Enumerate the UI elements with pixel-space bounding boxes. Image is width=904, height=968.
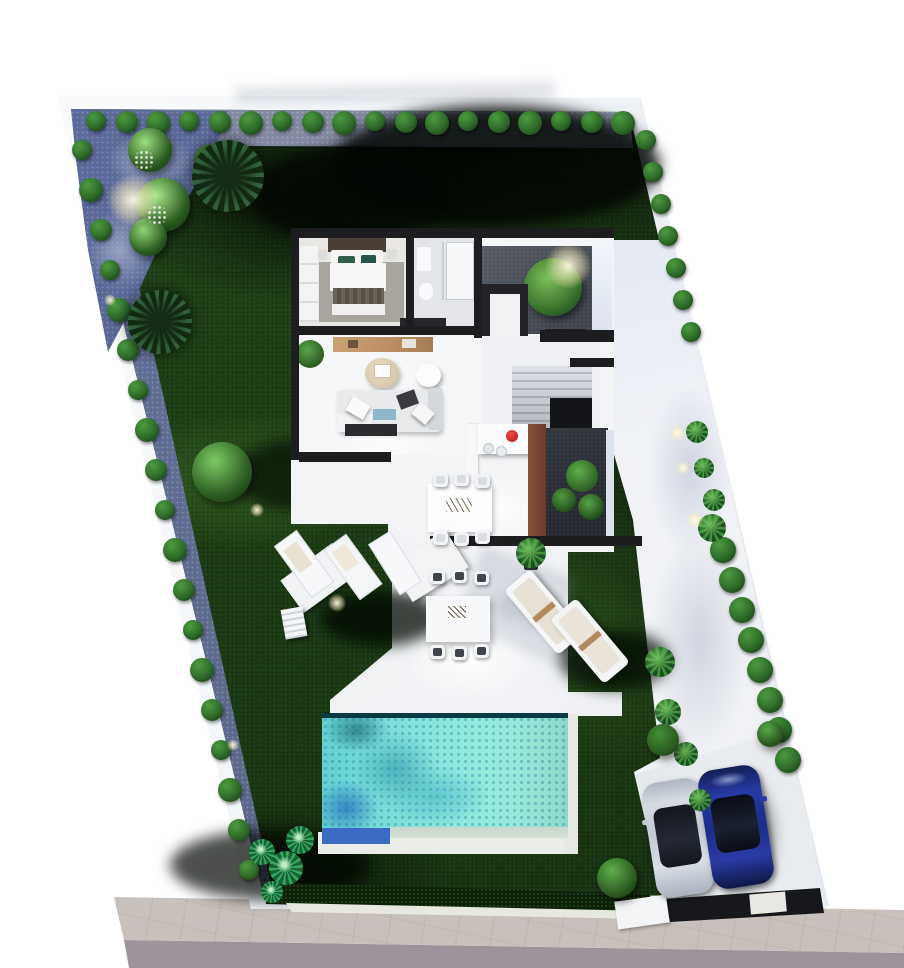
indoor-chair-seat	[436, 534, 445, 542]
walkway-plant	[689, 789, 711, 811]
outdoor-chair-seat	[433, 648, 442, 656]
pool-top-edge	[322, 713, 568, 718]
kitchen-sink	[483, 443, 494, 454]
palm-tree	[128, 290, 192, 354]
nightstand	[318, 250, 327, 260]
court-sill	[606, 430, 614, 540]
wardrobe	[300, 246, 318, 322]
wall-living-south	[299, 452, 391, 462]
tv-bench	[345, 424, 397, 436]
indoor-chair-seat	[457, 475, 466, 483]
indoor-chair-seat	[457, 535, 466, 543]
boundary-bush-top	[209, 111, 231, 133]
walkway-plant	[645, 647, 675, 677]
boundary-bush-left	[100, 260, 120, 280]
boundary-bush-left	[145, 459, 167, 481]
garden-light-glow	[669, 425, 685, 441]
red-cooktop	[506, 430, 518, 442]
stair-wall	[570, 358, 614, 367]
coffee-table-tray	[374, 364, 391, 378]
tree-blossoms	[134, 150, 154, 170]
outdoor-chair-seat	[455, 572, 464, 580]
walkway-plant	[703, 489, 725, 511]
boundary-bush-left	[183, 620, 203, 640]
sofa-throw-blue	[373, 409, 396, 420]
boundary-bush-right	[673, 290, 693, 310]
boundary-bush-top	[272, 111, 292, 131]
threshold-marker	[749, 891, 787, 914]
boundary-bush-top	[365, 111, 385, 131]
patio-wall-lit-top	[482, 238, 597, 246]
boundary-bush-right	[681, 322, 701, 342]
boundary-bush-top	[86, 111, 106, 131]
car-mirror	[760, 795, 768, 801]
walkway-plant	[694, 458, 714, 478]
pool-step-ledge	[390, 827, 568, 838]
garden-tree	[597, 858, 637, 898]
side-table-white	[416, 364, 441, 387]
garden-light-glow	[328, 594, 346, 612]
garden-light-glow	[250, 503, 264, 517]
boundary-bush-right	[658, 226, 678, 246]
boundary-bush-top	[425, 111, 449, 135]
boundary-bush-right	[666, 258, 686, 278]
boundary-bush-top	[239, 111, 263, 135]
outdoor-chair-seat	[477, 574, 486, 582]
walkway-hedge-ball	[775, 747, 801, 773]
houseplant-west	[296, 340, 324, 368]
garden-tree	[647, 724, 679, 756]
boundary-bush-right	[643, 162, 663, 182]
kitchen-sink	[496, 446, 507, 457]
garden-light-glow	[107, 174, 159, 226]
court-plant	[552, 488, 576, 512]
indoor-chair-seat	[478, 477, 487, 485]
boundary-bush-top	[179, 111, 199, 131]
table-centerpiece	[448, 606, 466, 618]
boundary-bush-right	[636, 130, 656, 150]
boundary-bush-left	[218, 778, 242, 802]
bed-foot	[332, 304, 385, 315]
boundary-bush-top	[518, 111, 542, 135]
boundary-bush-top	[611, 111, 635, 135]
outdoor-dining-table	[426, 596, 490, 642]
corner-plant	[261, 881, 283, 903]
walkway-hedge-ball	[757, 687, 783, 713]
outdoor-chair-seat	[433, 573, 442, 581]
court-plant	[578, 494, 604, 520]
house-wall-north	[291, 228, 614, 238]
indoor-chair-seat	[436, 476, 445, 484]
wall-mid	[299, 326, 482, 335]
boundary-bush-top	[458, 111, 478, 131]
boundary-bush-right	[651, 194, 671, 214]
dining-centerpiece	[446, 498, 472, 512]
nightstand	[387, 249, 397, 259]
car-glass	[709, 793, 762, 855]
walkway-plant	[686, 421, 708, 443]
palm-tree	[192, 140, 264, 212]
boundary-bush-top	[116, 111, 138, 133]
boundary-bush-top	[488, 111, 510, 133]
house-wall-west	[291, 228, 299, 460]
garden-light-glow	[227, 739, 239, 751]
vanity-sink	[417, 247, 431, 271]
boundary-bush-left	[90, 219, 112, 241]
tree-shadow	[250, 150, 450, 240]
boundary-bush-left	[201, 699, 223, 721]
boundary-bush-left	[173, 579, 195, 601]
walkway-hedge-ball	[729, 597, 755, 623]
site-plan-render	[0, 0, 904, 968]
walkway-hedge-ball	[738, 627, 764, 653]
wall-bath-patio	[474, 238, 482, 338]
wall-bed-bath	[406, 238, 414, 332]
stair-void	[550, 398, 592, 428]
entry-vestibule-floor	[490, 294, 520, 338]
wall-below-patio	[540, 330, 614, 342]
toilet	[419, 283, 433, 300]
lounger-towel	[332, 543, 359, 572]
walkway-plant	[655, 699, 681, 725]
terrace-under-living	[299, 455, 389, 524]
terrace-plant	[516, 538, 546, 568]
shower-glass	[442, 242, 444, 300]
boundary-bush-left	[135, 418, 159, 442]
corner-plant	[269, 851, 303, 885]
boundary-bush-top	[551, 111, 571, 131]
indoor-chair-seat	[478, 533, 487, 541]
boundary-bush-left	[72, 140, 92, 160]
shower	[446, 242, 474, 300]
boundary-bush-top	[302, 111, 324, 133]
pool-water	[322, 716, 568, 834]
pool-blue-corner	[322, 828, 390, 844]
console-item	[402, 339, 416, 348]
court-plant	[566, 460, 598, 492]
garden-tree	[192, 442, 252, 502]
outdoor-chair-seat	[477, 647, 486, 655]
boundary-bush-left	[163, 538, 187, 562]
boundary-bush-top	[395, 111, 417, 133]
garden-light-glow	[676, 461, 690, 475]
boundary-bush-top	[581, 111, 603, 133]
patio-wall-lit-right	[592, 240, 612, 334]
garden-light-glow	[104, 294, 116, 306]
outdoor-chair-seat	[455, 649, 464, 657]
bed-duvet	[330, 263, 386, 291]
pool-corner-plant	[286, 826, 314, 854]
garden-tree	[757, 721, 783, 747]
garden-light-glow	[687, 512, 703, 528]
car-mirror	[642, 819, 650, 825]
boundary-bush-left	[128, 380, 148, 400]
boundary-bush-top	[332, 111, 356, 135]
court-planter-wall	[528, 424, 546, 540]
console-item	[348, 340, 358, 348]
patio-light-glow	[544, 244, 592, 288]
